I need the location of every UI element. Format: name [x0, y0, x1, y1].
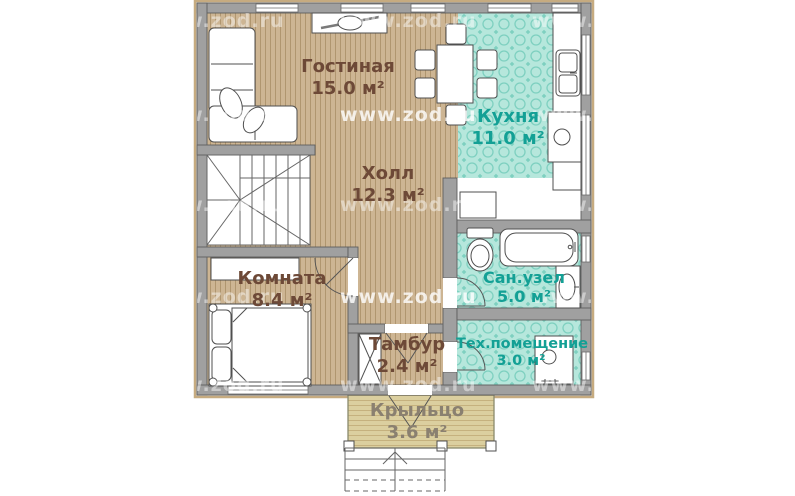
wardrobe-icon [359, 334, 381, 384]
cooktop-icon [548, 112, 581, 162]
cabinet-icon [460, 192, 496, 218]
chair-icon [415, 78, 435, 98]
chair-icon [446, 24, 466, 44]
bed-icon [209, 304, 311, 386]
fireplace-icon [312, 13, 387, 33]
closet-icon [211, 258, 299, 280]
chair-icon [446, 105, 466, 125]
porch-steps-icon [345, 448, 445, 491]
porch-floor [348, 395, 494, 448]
floorplan-svg [0, 0, 795, 496]
chair-icon [477, 78, 497, 98]
washbasin-icon [556, 266, 580, 308]
chair-icon [415, 50, 435, 70]
boiler-icon [535, 336, 573, 384]
bathtub-icon [500, 229, 578, 266]
chair-icon [477, 50, 497, 70]
sink-icon [556, 50, 580, 96]
floorplan-canvas: www.zod.ruwww.zod.ruwww.zod.ruwww.zod.ru… [0, 0, 795, 496]
toilet-icon [467, 228, 493, 271]
stairs-floor [207, 145, 310, 245]
